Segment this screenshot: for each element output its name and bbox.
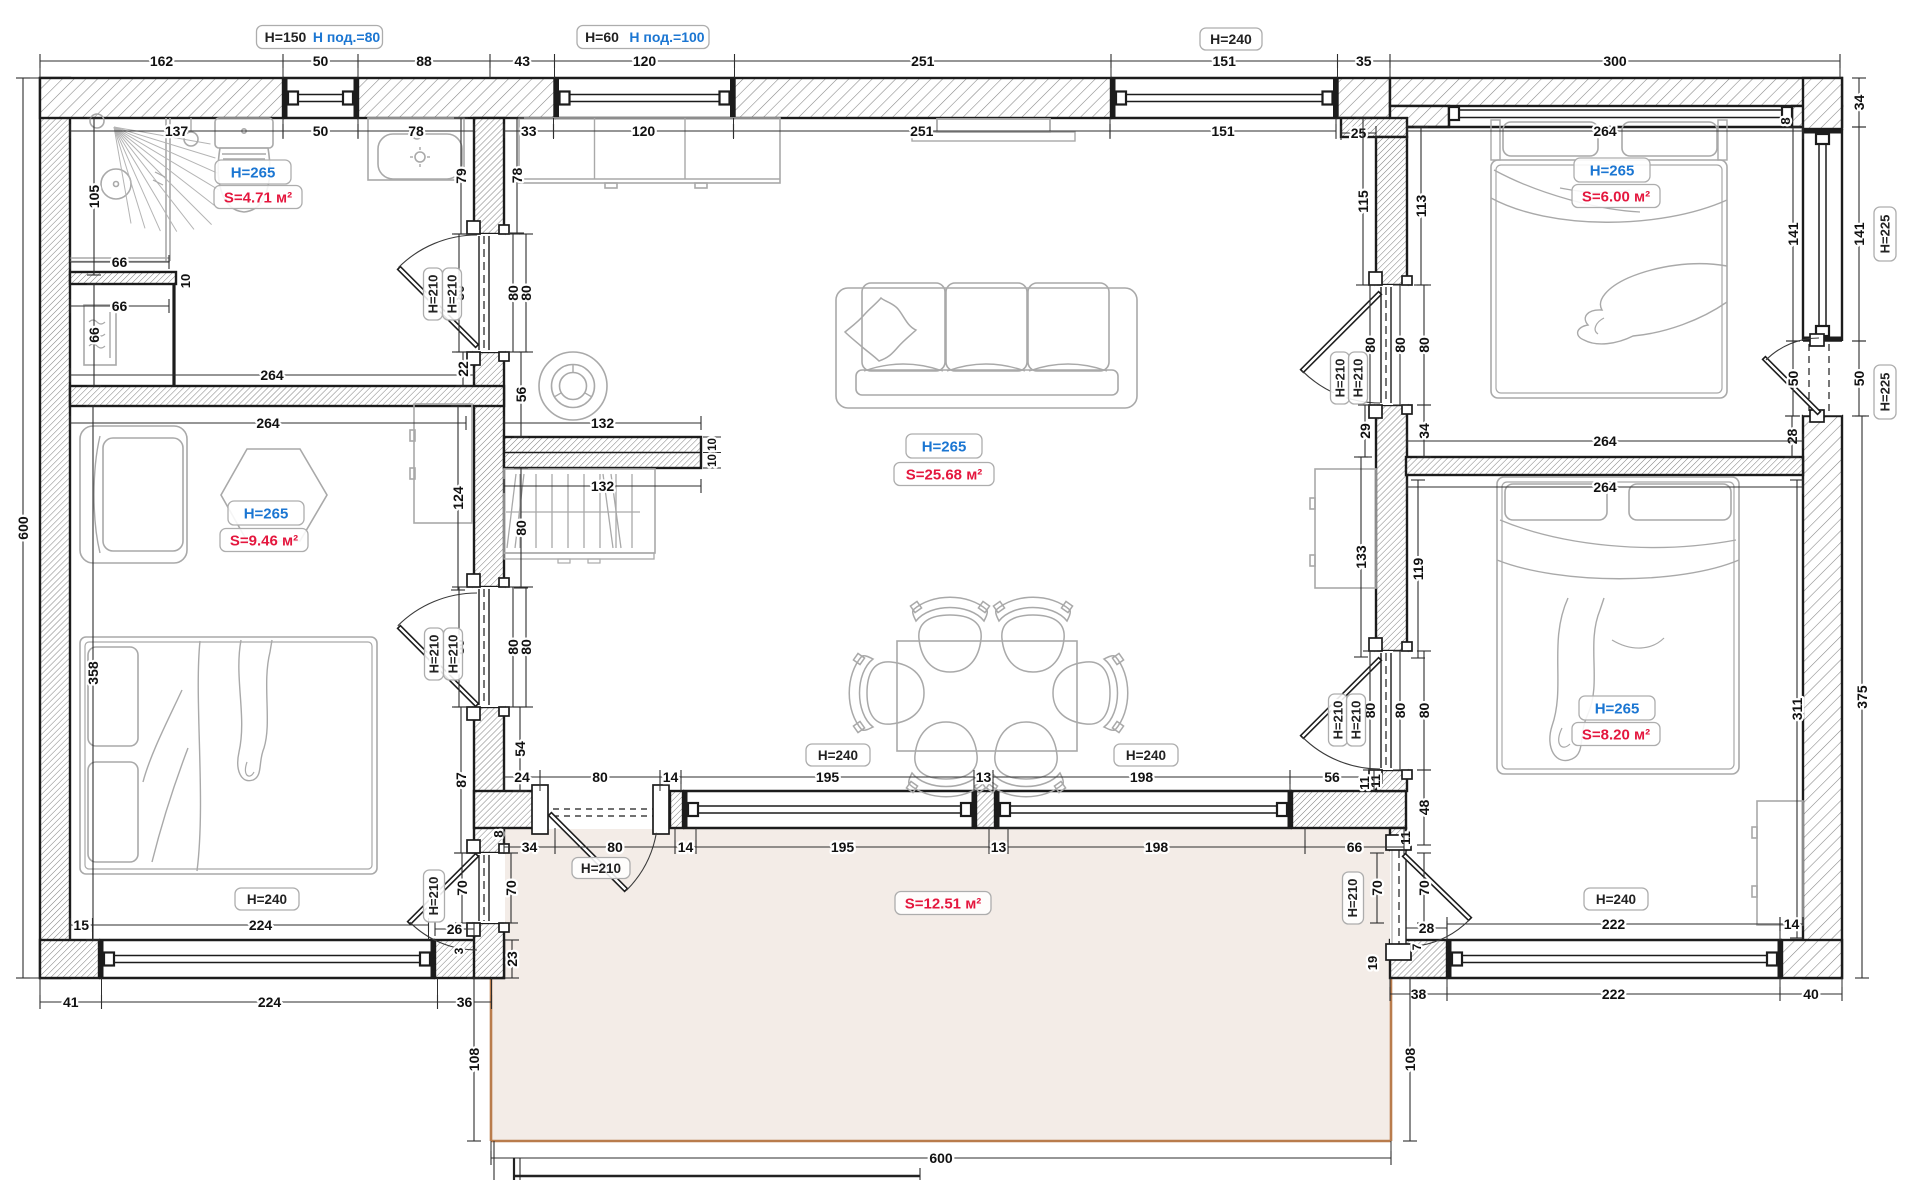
svg-text:33: 33 xyxy=(521,123,537,139)
svg-text:66: 66 xyxy=(1347,839,1363,855)
svg-text:H=210: H=210 xyxy=(445,275,460,314)
svg-text:80: 80 xyxy=(518,285,534,301)
svg-text:H под.=100: H под.=100 xyxy=(629,29,704,45)
svg-text:80: 80 xyxy=(513,520,529,536)
svg-text:66: 66 xyxy=(112,298,128,314)
svg-text:132: 132 xyxy=(591,478,615,494)
svg-text:264: 264 xyxy=(1593,433,1617,449)
svg-text:13: 13 xyxy=(991,839,1007,855)
svg-text:80: 80 xyxy=(518,639,534,655)
svg-text:120: 120 xyxy=(632,123,656,139)
svg-text:78: 78 xyxy=(408,123,424,139)
svg-text:375: 375 xyxy=(1854,685,1870,709)
svg-text:7: 7 xyxy=(1410,943,1424,950)
svg-text:311: 311 xyxy=(1789,697,1805,720)
svg-text:66: 66 xyxy=(112,254,128,270)
svg-text:108: 108 xyxy=(1402,1048,1418,1072)
svg-text:251: 251 xyxy=(911,53,935,69)
svg-text:34: 34 xyxy=(1851,95,1867,111)
svg-text:48: 48 xyxy=(1416,800,1432,816)
svg-text:8: 8 xyxy=(1778,117,1793,124)
svg-text:133: 133 xyxy=(1353,545,1369,569)
svg-text:H=265: H=265 xyxy=(1595,700,1640,717)
svg-text:108: 108 xyxy=(466,1048,482,1072)
svg-text:10: 10 xyxy=(707,454,719,467)
svg-text:70: 70 xyxy=(1416,880,1432,896)
svg-text:264: 264 xyxy=(1593,479,1617,495)
svg-text:14: 14 xyxy=(1784,916,1800,932)
svg-text:H=210: H=210 xyxy=(1331,701,1346,740)
svg-text:H=210: H=210 xyxy=(426,877,441,916)
svg-text:115: 115 xyxy=(1355,190,1371,213)
svg-text:79: 79 xyxy=(453,168,469,184)
svg-text:H=210: H=210 xyxy=(426,275,441,314)
svg-text:H=210: H=210 xyxy=(1345,879,1360,918)
svg-text:10: 10 xyxy=(178,274,193,288)
svg-text:22: 22 xyxy=(455,361,471,377)
svg-text:H под.=80: H под.=80 xyxy=(313,29,381,45)
svg-text:70: 70 xyxy=(1369,880,1385,896)
svg-text:162: 162 xyxy=(150,53,174,69)
svg-text:124: 124 xyxy=(450,486,466,510)
svg-text:24: 24 xyxy=(514,769,530,785)
svg-text:198: 198 xyxy=(1145,839,1169,855)
svg-text:222: 222 xyxy=(1602,986,1626,1002)
svg-text:35: 35 xyxy=(1356,53,1372,69)
svg-text:88: 88 xyxy=(416,53,432,69)
svg-text:S=6.00 м²: S=6.00 м² xyxy=(1582,188,1650,205)
svg-text:54: 54 xyxy=(512,741,528,757)
svg-text:113: 113 xyxy=(1413,194,1429,217)
svg-text:H=210: H=210 xyxy=(581,861,621,876)
svg-text:50: 50 xyxy=(1851,371,1867,387)
svg-text:222: 222 xyxy=(1602,916,1626,932)
svg-text:H=240: H=240 xyxy=(818,748,858,763)
svg-text:105: 105 xyxy=(86,185,102,209)
svg-text:120: 120 xyxy=(633,53,657,69)
svg-text:15: 15 xyxy=(73,917,89,933)
svg-text:H=210: H=210 xyxy=(1333,359,1348,398)
svg-text:80: 80 xyxy=(1392,337,1408,353)
svg-text:S=8.20 м²: S=8.20 м² xyxy=(1582,726,1650,743)
svg-text:23: 23 xyxy=(504,951,520,967)
svg-text:H=210: H=210 xyxy=(1351,359,1366,398)
svg-text:56: 56 xyxy=(513,387,529,403)
svg-text:224: 224 xyxy=(249,917,273,933)
svg-text:H=240: H=240 xyxy=(1596,892,1636,907)
svg-text:70: 70 xyxy=(454,880,470,896)
svg-text:38: 38 xyxy=(1411,986,1427,1002)
svg-text:13: 13 xyxy=(976,769,992,785)
svg-text:80: 80 xyxy=(1392,703,1408,719)
svg-text:S=12.51 м²: S=12.51 м² xyxy=(905,895,982,912)
svg-text:78: 78 xyxy=(509,168,525,184)
svg-text:66: 66 xyxy=(86,327,102,343)
svg-text:251: 251 xyxy=(910,123,934,139)
svg-text:50: 50 xyxy=(313,53,329,69)
svg-text:H=210: H=210 xyxy=(1349,701,1364,740)
svg-text:119: 119 xyxy=(1410,557,1426,580)
svg-text:19: 19 xyxy=(1365,956,1380,970)
svg-text:56: 56 xyxy=(1324,769,1340,785)
svg-text:34: 34 xyxy=(1416,423,1432,439)
svg-text:H=60: H=60 xyxy=(585,29,619,45)
svg-text:600: 600 xyxy=(929,1150,953,1166)
svg-text:80: 80 xyxy=(1362,337,1378,353)
svg-text:28: 28 xyxy=(1784,429,1800,445)
svg-text:41: 41 xyxy=(63,994,79,1010)
svg-text:H=225: H=225 xyxy=(1878,373,1893,412)
svg-text:80: 80 xyxy=(1416,703,1432,719)
svg-text:141: 141 xyxy=(1785,222,1801,246)
svg-text:264: 264 xyxy=(260,367,284,383)
svg-text:264: 264 xyxy=(256,415,280,431)
svg-text:H=265: H=265 xyxy=(922,438,967,455)
svg-text:H=265: H=265 xyxy=(244,505,289,522)
svg-text:358: 358 xyxy=(85,661,101,685)
svg-text:70: 70 xyxy=(503,880,519,896)
svg-text:S=4.71 м²: S=4.71 м² xyxy=(224,189,292,206)
svg-text:11: 11 xyxy=(1398,831,1413,845)
svg-text:H=225: H=225 xyxy=(1878,215,1893,254)
svg-text:600: 600 xyxy=(15,516,31,540)
svg-text:H=150: H=150 xyxy=(265,29,307,45)
svg-text:S=9.46 м²: S=9.46 м² xyxy=(230,532,298,549)
svg-text:S=25.68 м²: S=25.68 м² xyxy=(906,466,983,483)
svg-text:14: 14 xyxy=(663,769,679,785)
svg-text:43: 43 xyxy=(514,53,530,69)
svg-text:36: 36 xyxy=(457,994,473,1010)
svg-text:H=240: H=240 xyxy=(1126,748,1166,763)
svg-text:H=240: H=240 xyxy=(247,892,287,907)
svg-text:141: 141 xyxy=(1851,222,1867,246)
svg-text:H=265: H=265 xyxy=(231,164,276,181)
svg-text:300: 300 xyxy=(1603,53,1627,69)
svg-text:151: 151 xyxy=(1211,123,1235,139)
svg-text:34: 34 xyxy=(522,839,538,855)
svg-text:264: 264 xyxy=(1593,123,1617,139)
svg-text:H=265: H=265 xyxy=(1590,162,1635,179)
svg-text:80: 80 xyxy=(607,839,623,855)
svg-text:195: 195 xyxy=(831,839,855,855)
svg-text:28: 28 xyxy=(1419,920,1435,936)
svg-text:11: 11 xyxy=(1357,776,1372,790)
svg-text:195: 195 xyxy=(816,769,840,785)
svg-text:14: 14 xyxy=(678,839,694,855)
svg-text:50: 50 xyxy=(1785,371,1801,387)
svg-text:87: 87 xyxy=(453,772,469,788)
svg-text:3: 3 xyxy=(452,947,466,954)
svg-text:224: 224 xyxy=(258,994,282,1010)
svg-text:50: 50 xyxy=(313,123,329,139)
svg-text:10: 10 xyxy=(707,438,719,451)
svg-text:25: 25 xyxy=(1351,125,1367,141)
svg-text:137: 137 xyxy=(165,123,189,139)
svg-text:H=210: H=210 xyxy=(446,635,461,674)
svg-text:H=240: H=240 xyxy=(1210,31,1252,47)
svg-text:132: 132 xyxy=(591,415,615,431)
svg-text:80: 80 xyxy=(1416,337,1432,353)
svg-text:40: 40 xyxy=(1803,986,1819,1002)
svg-text:198: 198 xyxy=(1130,769,1154,785)
svg-text:26: 26 xyxy=(447,921,463,937)
svg-text:80: 80 xyxy=(592,769,608,785)
svg-text:29: 29 xyxy=(1357,423,1373,439)
svg-text:H=210: H=210 xyxy=(427,635,442,674)
svg-text:151: 151 xyxy=(1213,53,1237,69)
